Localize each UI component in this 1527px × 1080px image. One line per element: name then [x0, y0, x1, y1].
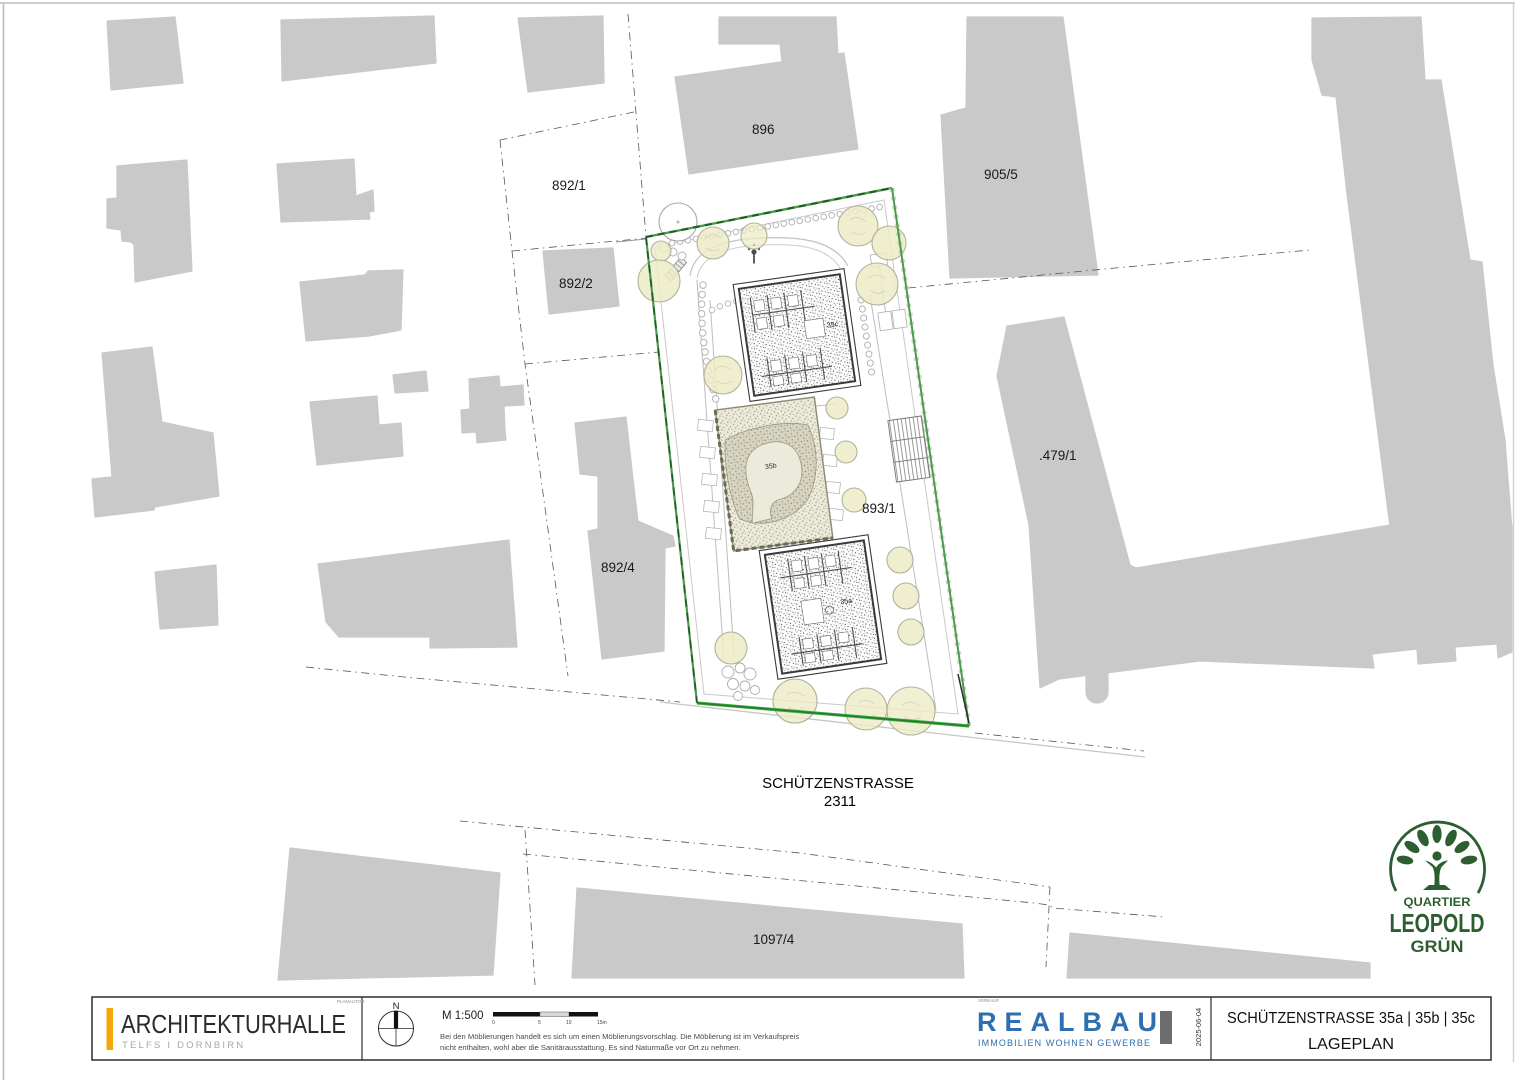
svg-text:N: N	[393, 1001, 400, 1012]
svg-text:892/2: 892/2	[559, 276, 593, 291]
svg-text:15m: 15m	[597, 1020, 607, 1026]
svg-text:SCHÜTZENSTRASSE 35a | 35b | 35: SCHÜTZENSTRASSE 35a | 35b | 35c	[1227, 1009, 1475, 1027]
svg-text:M 1:500: M 1:500	[442, 1010, 484, 1022]
svg-text:2025-06-04: 2025-06-04	[1194, 1008, 1203, 1046]
svg-text:LAGEPLAN: LAGEPLAN	[1308, 1036, 1394, 1053]
svg-text:QUARTIER: QUARTIER	[1404, 895, 1471, 909]
svg-text:GRÜN: GRÜN	[1411, 937, 1464, 956]
svg-text:nicht enthalten, wohl aber die: nicht enthalten, wohl aber die Sanitärau…	[440, 1043, 741, 1052]
svg-text:905/5: 905/5	[984, 167, 1018, 182]
svg-text:1097/4: 1097/4	[753, 932, 795, 947]
svg-text:892/4: 892/4	[601, 560, 635, 575]
svg-text:10: 10	[566, 1020, 572, 1026]
svg-text:VERKAUF: VERKAUF	[978, 998, 1000, 1003]
svg-text:TELFS I DORNBIRN: TELFS I DORNBIRN	[122, 1040, 245, 1051]
svg-text:893/1: 893/1	[862, 501, 896, 516]
svg-text:0: 0	[492, 1020, 495, 1026]
svg-text:LEOPOLD: LEOPOLD	[1390, 908, 1485, 938]
svg-text:.479/1: .479/1	[1039, 448, 1077, 463]
svg-text:SCHÜTZENSTRASSE: SCHÜTZENSTRASSE	[762, 774, 914, 792]
svg-text:5: 5	[538, 1020, 541, 1026]
svg-text:Bei den Möblierungen handelt e: Bei den Möblierungen handelt es sich um …	[440, 1032, 799, 1041]
svg-text:2311: 2311	[824, 793, 856, 810]
svg-text:IMMOBILIEN WOHNEN GEWERBE: IMMOBILIEN WOHNEN GEWERBE	[978, 1038, 1150, 1048]
svg-text:PLANAUTOR: PLANAUTOR	[337, 999, 365, 1004]
svg-text:896: 896	[752, 122, 775, 137]
svg-text:892/1: 892/1	[552, 178, 586, 193]
svg-text:ARCHITEKTURHALLE: ARCHITEKTURHALLE	[121, 1009, 346, 1039]
